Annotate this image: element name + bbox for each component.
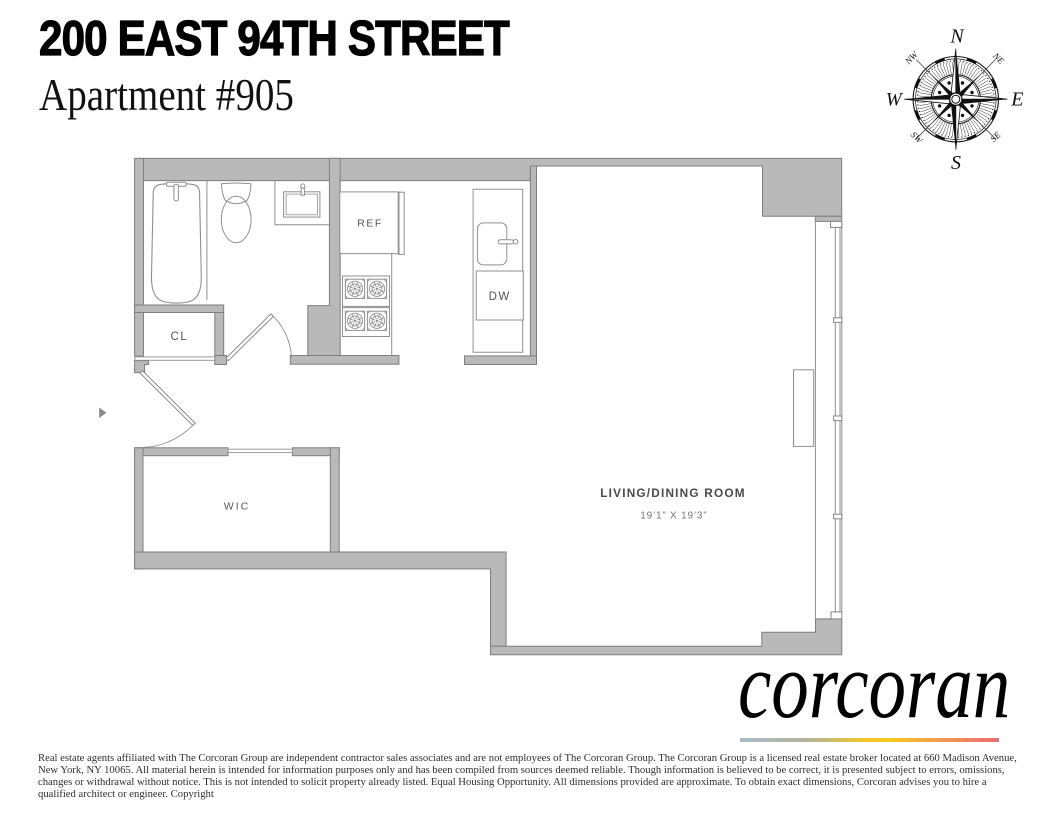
svg-text:NW: NW <box>902 49 920 67</box>
svg-text:DW: DW <box>489 291 511 303</box>
svg-text:W: W <box>886 90 904 111</box>
svg-text:WIC: WIC <box>224 501 250 513</box>
svg-text:LIVING/DINING ROOM: LIVING/DINING ROOM <box>600 486 745 500</box>
svg-text:N: N <box>949 26 965 48</box>
svg-text:S: S <box>951 152 961 174</box>
svg-text:REF: REF <box>357 218 383 230</box>
svg-text:SE: SE <box>988 129 1002 143</box>
svg-text:19’1” X 19’3”: 19’1” X 19’3” <box>640 511 707 522</box>
svg-text:E: E <box>1010 89 1023 111</box>
svg-text:CL: CL <box>171 331 189 343</box>
svg-text:NE: NE <box>990 50 1006 66</box>
